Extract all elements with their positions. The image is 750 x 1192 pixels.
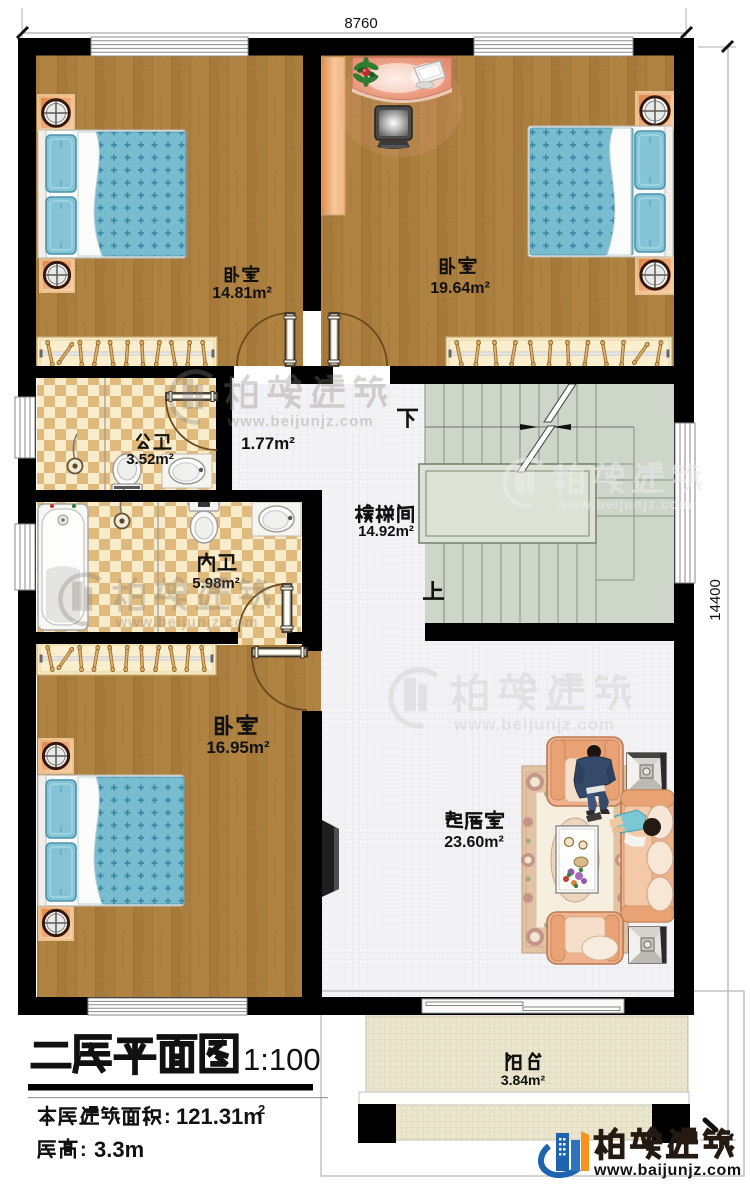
svg-text:www.baijunjz.com: www.baijunjz.com — [593, 1162, 742, 1179]
svg-text:3.3m: 3.3m — [94, 1137, 144, 1162]
svg-text:19.64m²: 19.64m² — [430, 280, 490, 297]
svg-text:14400: 14400 — [707, 579, 724, 621]
svg-text:3.52m²: 3.52m² — [126, 451, 174, 468]
svg-text::: : — [164, 1106, 171, 1128]
svg-text:16.95m²: 16.95m² — [206, 738, 270, 757]
svg-text:www.beijunjz.com: www.beijunjz.com — [227, 413, 374, 430]
svg-text:14.81m²: 14.81m² — [212, 285, 272, 302]
svg-text:14.92m²: 14.92m² — [358, 523, 414, 540]
svg-text:1.77m²: 1.77m² — [241, 434, 295, 453]
svg-text:23.60m²: 23.60m² — [444, 834, 504, 851]
svg-text::: : — [80, 1139, 87, 1161]
svg-text:www.beijunjz.com: www.beijunjz.com — [556, 496, 693, 512]
svg-text:www.beijunjz.com: www.beijunjz.com — [453, 715, 615, 734]
svg-text:2: 2 — [258, 1102, 265, 1117]
svg-text:8760: 8760 — [344, 15, 377, 32]
svg-text:1:100: 1:100 — [243, 1042, 321, 1077]
svg-text:121.31m: 121.31m — [176, 1104, 263, 1129]
svg-text:3.84m²: 3.84m² — [501, 1072, 546, 1088]
svg-text:www.beijunjz.com: www.beijunjz.com — [115, 615, 259, 631]
